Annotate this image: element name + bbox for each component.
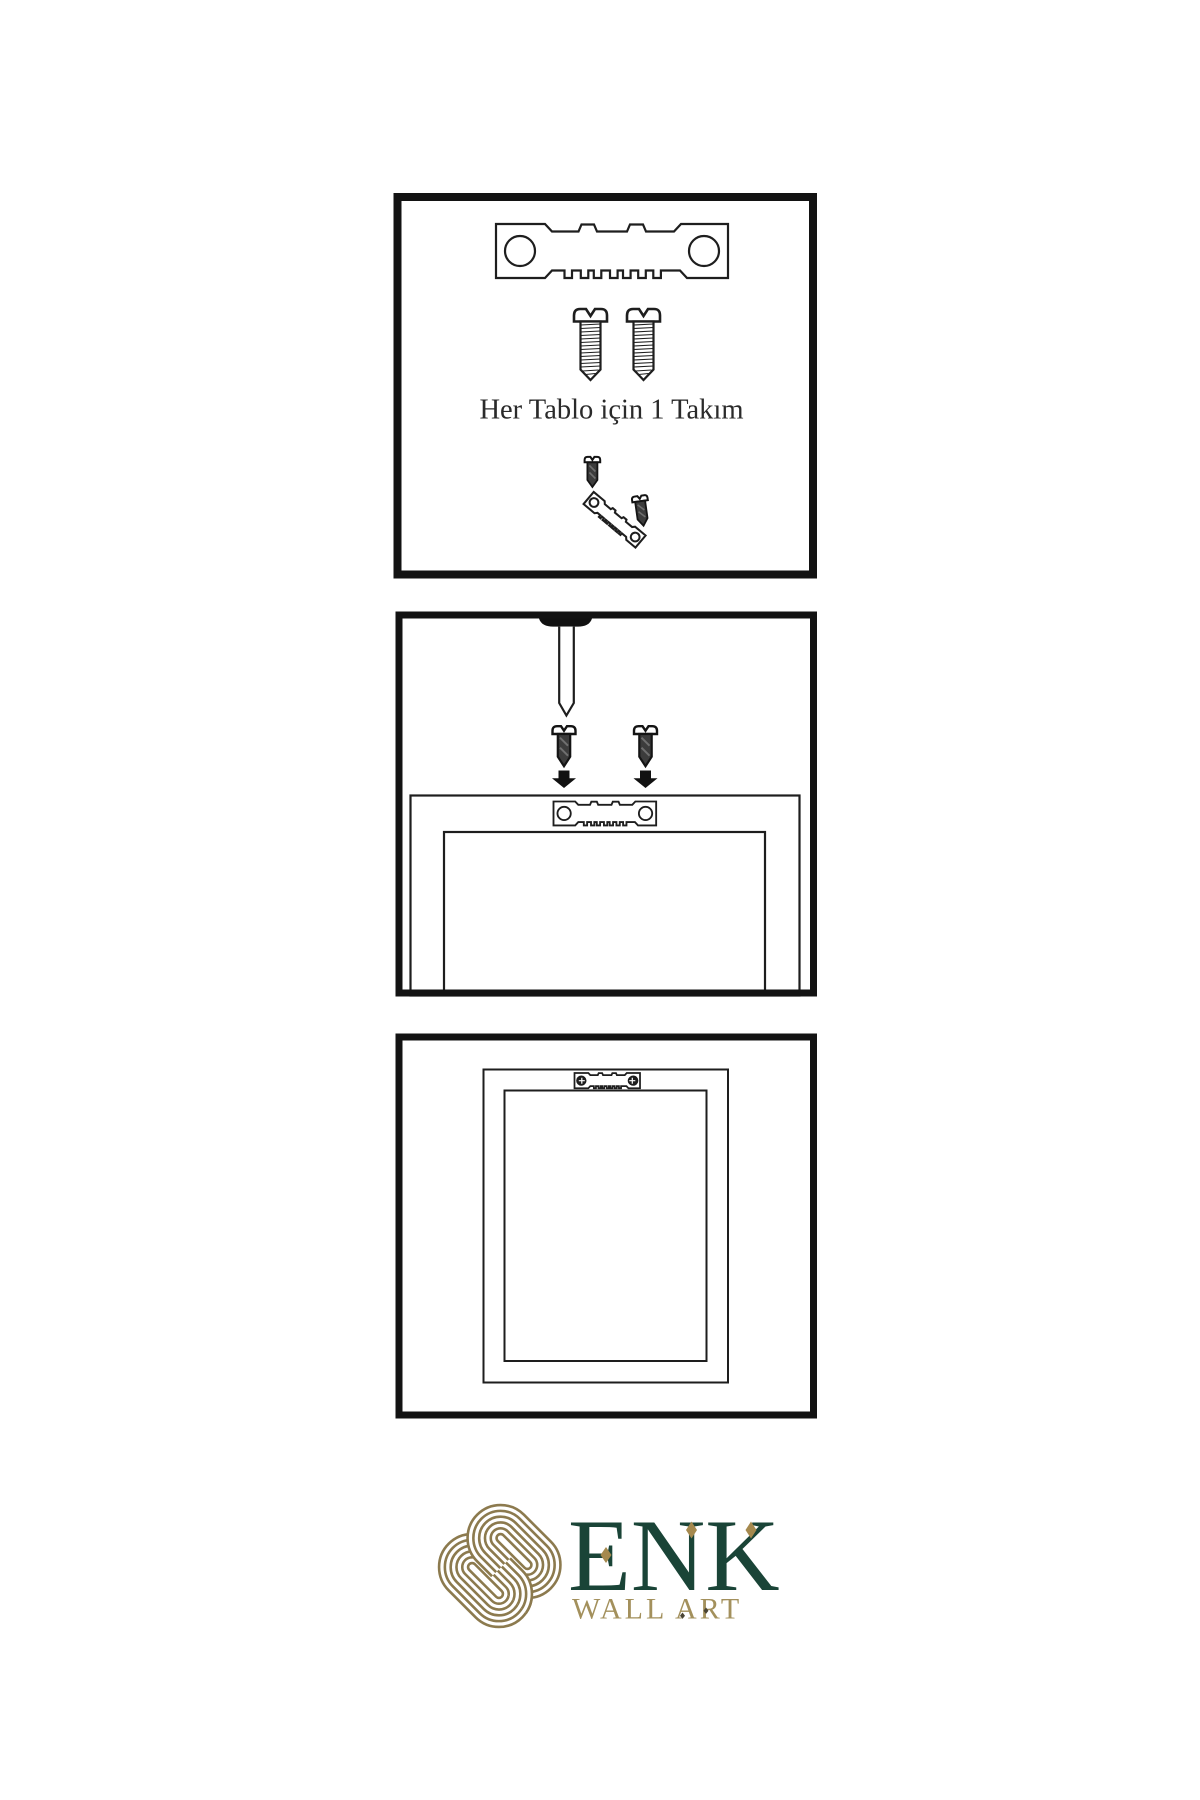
svg-text:Her Tablo için 1 Takım: Her Tablo için 1 Takım [479, 395, 743, 426]
svg-text:WALL ART: WALL ART [572, 1593, 742, 1626]
